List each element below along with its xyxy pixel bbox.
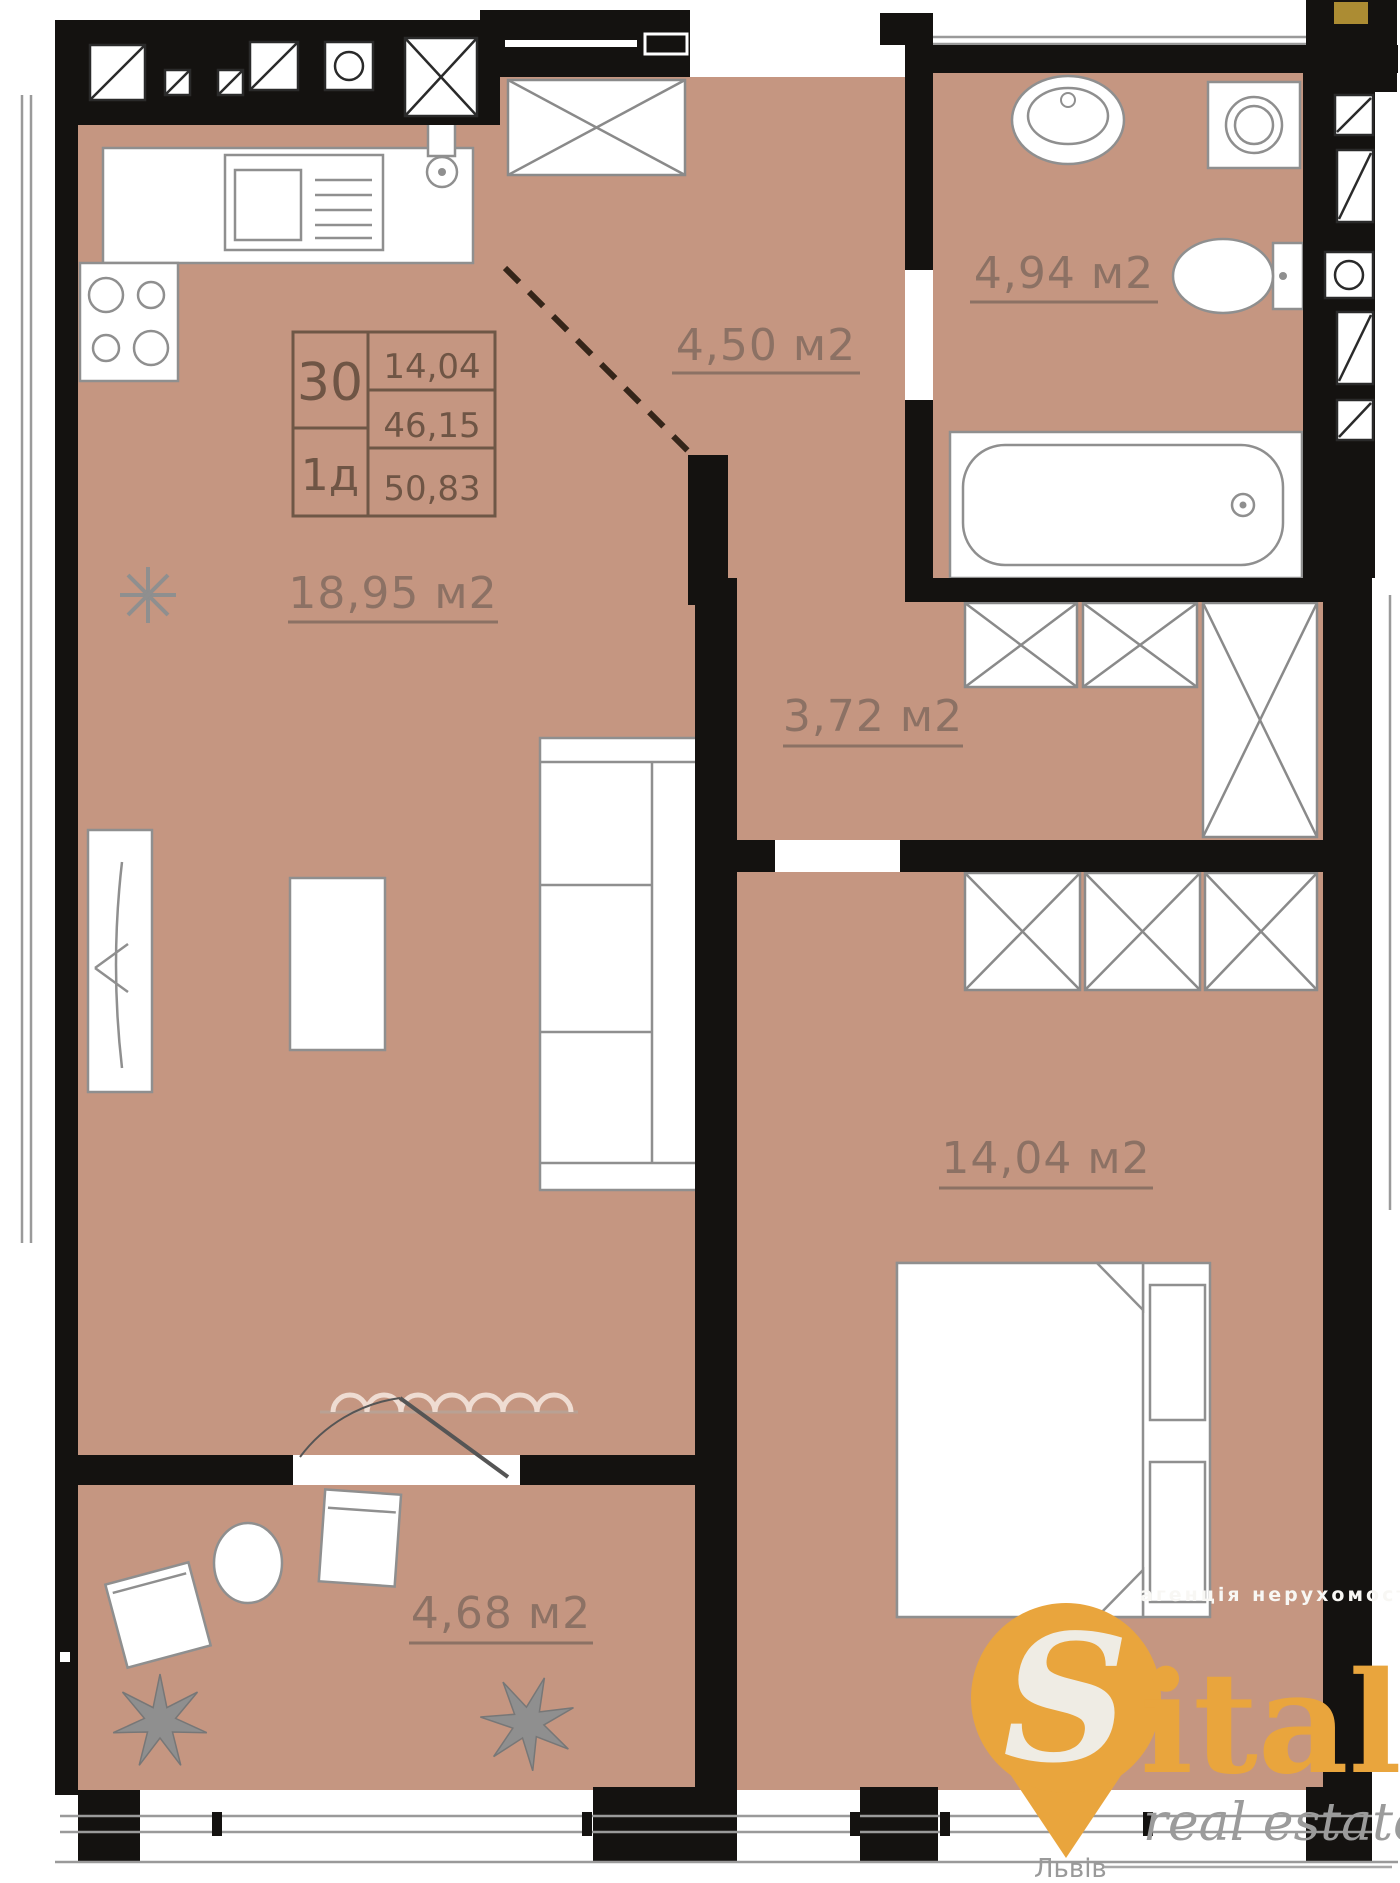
floor-plan-drawing: 18,95 м2 4,50 м2 4,94 м2 3,72 м2 14,04 м… — [0, 0, 1400, 1883]
brand-tagline: real estate — [1143, 1793, 1400, 1853]
balcony-chair — [319, 1489, 401, 1586]
kitchen-counter — [103, 148, 473, 263]
balcony-table — [214, 1523, 282, 1603]
brand-pin-icon: S — [971, 1597, 1161, 1858]
bedroom-closet-icons — [965, 873, 1317, 990]
sofa — [540, 738, 700, 1190]
bathroom-area-label: 4,94 м2 — [974, 248, 1154, 299]
balcony-area-label: 4,68 м2 — [411, 1588, 591, 1639]
bed — [897, 1263, 1210, 1617]
boiler-star-icon — [120, 567, 176, 623]
bathtub-icon — [950, 432, 1302, 578]
entry-hall-area-label: 4,50 м2 — [676, 320, 856, 371]
pillow-icon — [1150, 1462, 1205, 1602]
bedroom-area-label: 14,04 м2 — [941, 1133, 1150, 1184]
toilet-icon — [1173, 239, 1303, 313]
bathroom-door-opening — [905, 270, 933, 400]
pillow-icon — [1150, 1285, 1205, 1420]
washing-machine-icon — [1208, 82, 1300, 168]
kitchen-living-area-label: 18,95 м2 — [288, 568, 497, 619]
bedroom-door-opening — [775, 840, 900, 872]
hallway-area-label: 3,72 м2 — [783, 691, 963, 742]
unit-area-row: 14,04 — [383, 347, 480, 387]
unit-area-row: 50,83 — [383, 469, 480, 509]
entry-wardrobe-icon — [508, 80, 685, 175]
bathroom-sink-icon — [1012, 76, 1124, 164]
unit-area-row: 46,15 — [383, 406, 480, 446]
stove-icon — [80, 263, 178, 381]
coffee-table — [290, 878, 385, 1050]
brand-name-rest: italo — [1140, 1642, 1400, 1806]
unit-number: 30 — [297, 353, 363, 413]
corner-marker — [1334, 2, 1368, 24]
tv-stand — [88, 830, 152, 1092]
unit-type: 1д — [301, 450, 359, 501]
agency-tagline: агенція нерухомості — [1140, 1584, 1400, 1606]
floor-plan-page: 18,95 м2 4,50 м2 4,94 м2 3,72 м2 14,04 м… — [0, 0, 1400, 1883]
brand-initial: S — [1003, 1597, 1129, 1802]
small-sink-icon — [427, 116, 457, 187]
city-label: Львів — [1034, 1854, 1107, 1883]
